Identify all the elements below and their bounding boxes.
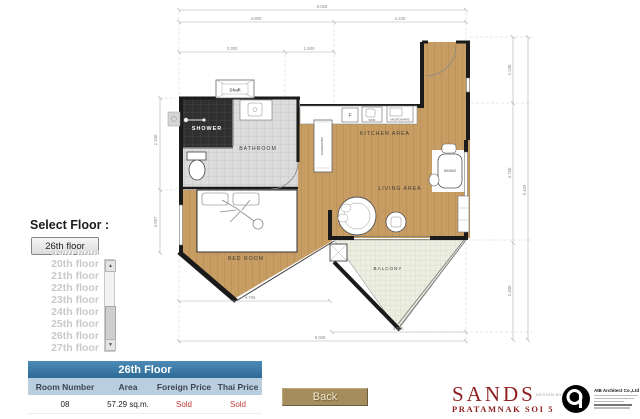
room-label-living: LIVING AREA <box>378 186 421 192</box>
page: Shaft F SINK MICROWAVE WARDROBE <box>0 0 640 419</box>
company-address-line <box>594 398 634 400</box>
cell-thai-price: Sold <box>214 395 262 413</box>
dim-top-left: 4.800 <box>251 16 262 21</box>
table-header-row: Room Number Area Foreign Price Thai Pric… <box>28 378 262 395</box>
room-label-dining: DINING <box>444 169 457 173</box>
dim-right-mid: 4.750 <box>507 167 512 178</box>
fridge-label: F <box>348 113 351 119</box>
architect-company-name: AIB Architect Co.,Ltd <box>594 388 640 393</box>
floor-option-24[interactable]: 24th floor <box>46 306 104 318</box>
floor-option-20[interactable]: 20th floor <box>46 258 104 270</box>
select-floor-label: Select Floor : <box>30 218 109 232</box>
room-label-shower: SHOWER <box>192 126 222 132</box>
balcony-unit <box>330 244 347 261</box>
dim-mid-left: 3.300 <box>227 46 238 51</box>
dim-bottom-total: 9.025 <box>315 335 326 340</box>
architect-company-block: AIB Architect Co.,Ltd <box>594 388 640 411</box>
col-foreign-price: Foreign Price <box>154 378 214 395</box>
wardrobe-label: WARDROBE <box>320 137 324 155</box>
microwave-label: MICROWAVE <box>390 118 409 122</box>
bed <box>197 190 297 252</box>
brand-subtitle: PRATAMNAK SOI 5 <box>452 404 554 414</box>
cell-room-number: 08 <box>28 395 102 413</box>
floor-option-23[interactable]: 23th floor <box>46 294 104 306</box>
floor-option-27[interactable]: 27th floor <box>46 342 104 354</box>
floor-list-scrollbar[interactable]: ▲ ▼ <box>104 259 115 352</box>
architect-logo-icon <box>562 385 590 413</box>
dim-left-lower: 4.597 <box>153 216 158 227</box>
dim-mid-right: 1.500 <box>304 46 315 51</box>
company-address-line <box>594 401 624 403</box>
floor-dropdown-list: 19th floor 20th floor 21th floor 22th fl… <box>46 251 104 355</box>
room-label-kitchen: KITCHEN AREA <box>360 131 410 137</box>
company-address-line <box>594 404 632 406</box>
scrollbar-up-arrow-icon[interactable]: ▲ <box>105 260 116 272</box>
scrollbar-thumb[interactable] <box>105 306 116 342</box>
design-by-label: DESIGN BY <box>536 392 562 397</box>
room-label-balcony: BALCONY <box>374 266 403 271</box>
table-row: 08 57.29 sq.m. Sold Sold <box>28 395 262 414</box>
external-fixture <box>168 112 180 126</box>
dim-right-total: 9.429 <box>522 184 527 195</box>
company-address-line <box>594 407 630 409</box>
back-button[interactable]: Back <box>282 388 368 406</box>
floor-option-26[interactable]: 26th floor <box>46 330 104 342</box>
dim-right-bottom: 2.400 <box>507 285 512 296</box>
table-title: 26th Floor <box>28 361 262 378</box>
floor-option-22[interactable]: 22th floor <box>46 282 104 294</box>
brand-block: SANDS PRATAMNAK SOI 5 <box>452 384 554 414</box>
room-label-bedroom: BED ROOM <box>228 256 264 262</box>
dim-left-upper: 2.100 <box>153 134 158 145</box>
shower-floor <box>181 98 233 148</box>
sink-label: SINK <box>368 118 376 122</box>
cell-foreign-price: Sold <box>154 395 214 413</box>
cell-area: 57.29 sq.m. <box>102 395 154 413</box>
col-thai-price: Thai Price <box>214 378 262 395</box>
wardrobe: WARDROBE <box>314 120 332 172</box>
shaft: Shaft <box>216 80 254 98</box>
floor-option-21[interactable]: 21th floor <box>46 270 104 282</box>
dim-top-right: 4.225 <box>395 16 406 21</box>
floor-option-25[interactable]: 25th floor <box>46 318 104 330</box>
company-address-line <box>594 395 638 397</box>
dim-top-total: 9.025 <box>317 4 328 9</box>
scrollbar-down-arrow-icon[interactable]: ▼ <box>105 339 116 351</box>
col-room-number: Room Number <box>28 378 102 395</box>
col-area: Area <box>102 378 154 395</box>
dim-bottom-bedroom: 4.706 <box>245 295 256 300</box>
shaft-label: Shaft <box>229 88 241 94</box>
room-label-bathroom: BATHROOM <box>239 146 277 152</box>
toilet <box>189 160 205 180</box>
floor-option-19[interactable]: 19th floor <box>46 251 104 258</box>
dim-right-top: 2.230 <box>507 64 512 75</box>
price-table: 26th Floor Room Number Area Foreign Pric… <box>28 361 262 414</box>
dim-bottom-balcony: 4.325 <box>393 326 404 331</box>
toilet-tank <box>187 152 206 160</box>
